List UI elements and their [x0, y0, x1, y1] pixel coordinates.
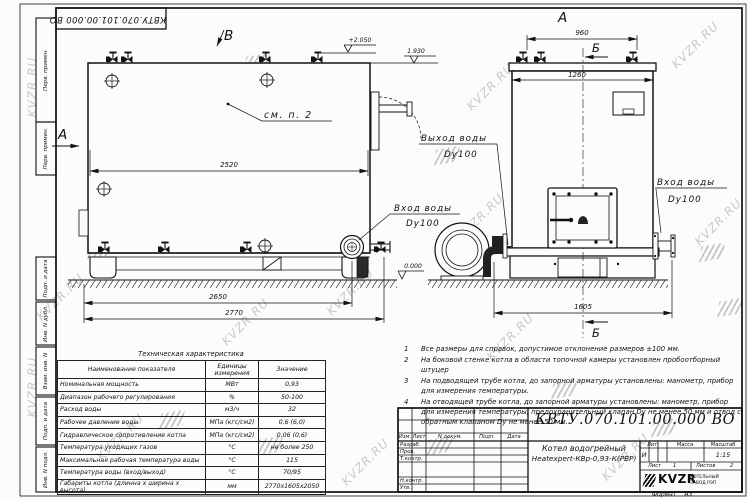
- reversed-designation: КВТУ.070.101.00.000 ВО: [56, 8, 166, 29]
- table-cell: Номинальная мощность: [58, 379, 206, 392]
- inlet-left-callout-line1: Вход воды: [394, 204, 452, 214]
- outlet-callout-line1: Выход воды: [421, 134, 487, 144]
- table-cell: МПа (кгс/см2): [206, 429, 259, 442]
- format-note: ФорматА3: [652, 491, 700, 498]
- table-row: Диапазон рабочего регулирования%50-100: [58, 391, 326, 404]
- elevation-mid-label: 1.930: [407, 48, 425, 55]
- table-row: Температура уходящих газов°Сне более 250: [58, 441, 326, 454]
- margin-box-podp-data-2: Подп. и дата: [36, 397, 56, 445]
- dim-2520-label: 2520: [220, 161, 238, 169]
- margin-box-perv-primen-1: Перв. примен.: [36, 18, 56, 122]
- format-label: Формат: [652, 491, 676, 498]
- dim-2650-label: 2650: [209, 293, 227, 301]
- inlet-flange-front: [653, 233, 675, 259]
- note-number: 1: [399, 344, 421, 354]
- blower-fan: [435, 223, 511, 280]
- table-cell: °С: [206, 467, 259, 480]
- table-cell: мм: [206, 479, 259, 494]
- title-block-designation: КВТУ.070.101.00.000 ВО: [528, 412, 742, 428]
- row-utv-label: Утв.: [400, 485, 411, 491]
- col-ndoc-label: N докум.: [438, 434, 462, 440]
- note-text: Все размеры для справок, допустимое откл…: [421, 344, 743, 354]
- table-cell: м3/ч: [206, 404, 259, 417]
- note-text: На боковой стенке котла в области топочн…: [421, 355, 743, 375]
- sheet-label: Лист: [648, 463, 661, 469]
- col-izm-label: Изм.: [399, 434, 411, 440]
- note-number: 4: [399, 397, 421, 427]
- dim-1605-label: 1605: [574, 303, 592, 311]
- margin-box-inv-dubl: Инв. N дубл.: [36, 302, 56, 345]
- note-item: 2 На боковой стенке котла в области топо…: [399, 355, 743, 375]
- table-cell: 70/95: [259, 467, 326, 480]
- view-b-label: В: [224, 28, 233, 44]
- margin-box-inv-podl: Инв. N подл.: [36, 447, 56, 492]
- table-row: Максимальная рабочая температура воды°С1…: [58, 454, 326, 467]
- format-value: А3: [684, 491, 692, 498]
- table-cell: МПа (кгс/см2): [206, 416, 259, 429]
- table-row: Габариты котла (длинна х ширина х высота…: [58, 479, 326, 494]
- table-row: Расход водым3/ч32: [58, 404, 326, 417]
- table-cell: 50-100: [259, 391, 326, 404]
- lit-label: Лит.: [647, 442, 659, 448]
- tech-table-title: Техническая характеристика: [57, 350, 325, 358]
- col-list-label: Лист: [412, 434, 425, 440]
- table-cell: МВт: [206, 379, 259, 392]
- sheets-label: Листов: [696, 463, 715, 469]
- table-cell: Расход воды: [58, 404, 206, 417]
- dim-2770-label: 2770: [225, 309, 243, 317]
- table-cell: 115: [259, 454, 326, 467]
- mass-label: Масса: [677, 442, 694, 448]
- table-cell: Температура воды (вход/выход): [58, 467, 206, 480]
- table-cell: Максимальная рабочая температура воды: [58, 454, 206, 467]
- table-cell: °С: [206, 441, 259, 454]
- sheet-value: 1: [673, 463, 676, 469]
- section-a-side-label: А: [57, 127, 67, 143]
- margin-box-perv-primen-2: Перв. примен.: [36, 122, 56, 175]
- inlet-right-callout-line2: Dy100: [668, 195, 702, 205]
- note-item: 1 Все размеры для справок, допустимое от…: [399, 344, 743, 354]
- doc-name-line1: Котел водогрейный: [528, 444, 640, 453]
- scale-value: 1:15: [716, 451, 731, 459]
- view-a-top-label: А: [557, 10, 567, 26]
- inlet-left-callout-line2: Dy100: [406, 219, 440, 229]
- table-cell: Рабочее давление воды: [58, 416, 206, 429]
- margin-box-vzam-inv: Взам. инв. N: [36, 347, 56, 395]
- table-cell: Диапазон рабочего регулирования: [58, 391, 206, 404]
- table-cell: Температура уходящих газов: [58, 441, 206, 454]
- table-cell: %: [206, 391, 259, 404]
- row-nkontr-label: Н.контр.: [400, 478, 423, 484]
- scale-label: Масштаб: [711, 442, 736, 448]
- furnace-door: [548, 188, 617, 248]
- kvzr-logo-subtext: КОТЕЛЬНЫЙЗАВОД РЭП: [690, 475, 719, 486]
- row-tkontr-label: Т.контр.: [400, 456, 422, 462]
- col-podp-label: Подп.: [479, 434, 495, 440]
- lit-value: И: [642, 451, 647, 459]
- table-row: Гидравлическое сопротивление котлаМПа (к…: [58, 429, 326, 442]
- row-prov-label: Пров.: [400, 449, 415, 455]
- table-row: Рабочее давление водыМПа (кгс/см2)0,6 (6…: [58, 416, 326, 429]
- table-cell: не более 250: [259, 441, 326, 454]
- table-header-name: Наименование показателя: [58, 361, 206, 379]
- tech-characteristics-table: Техническая характеристика Наименование …: [57, 350, 325, 495]
- col-data-label: Дата: [507, 434, 520, 440]
- doc-name-line2: Heatexpert-КВр-0,93-К(РВР): [527, 454, 641, 463]
- see-note-callout: см. п. 2: [264, 110, 313, 121]
- margin-box-podp-data-1: Подп. и дата: [36, 257, 56, 300]
- table-header-value: Значение: [259, 361, 326, 379]
- table-row: Температура воды (вход/выход)°С70/95: [58, 467, 326, 480]
- boiler-front-view: [428, 48, 675, 338]
- outlet-callout-line2: Dy100: [444, 150, 478, 160]
- kvzr-sub-line2: ЗАВОД РЭП: [690, 481, 716, 486]
- drawing-sheet: KVZR.RU KVZR.RU KVZR.RU KVZR.RU KVZR.RU …: [0, 0, 750, 500]
- section-b-bottom-label: Б: [592, 326, 600, 340]
- note-item: 3 На подводящей трубе котла, до запорной…: [399, 376, 743, 396]
- table-cell: 2770х1605х2050: [259, 479, 326, 494]
- section-b-top-label: Б: [592, 41, 600, 55]
- note-number: 2: [399, 355, 421, 375]
- table-cell: 0,06 (0,6): [259, 429, 326, 442]
- elevation-top-label: +2.050: [349, 37, 372, 44]
- table-cell: 32: [259, 404, 326, 417]
- row-razrab-label: Разраб.: [400, 442, 420, 448]
- note-text: На подводящей трубе котла, до запорной а…: [421, 376, 743, 396]
- sheets-value: 2: [730, 463, 733, 469]
- table-cell: Гидравлическое сопротивление котла: [58, 429, 206, 442]
- table-cell: °С: [206, 454, 259, 467]
- kvzr-sub-line1: КОТЕЛЬНЫЙ: [690, 475, 719, 480]
- table-cell: 0,6 (6,0): [259, 416, 326, 429]
- table-row: Номинальная мощностьМВт0,93: [58, 379, 326, 392]
- table-cell: Габариты котла (длинна х ширина х высота…: [58, 479, 206, 494]
- dim-1260-label: 1260: [568, 71, 586, 79]
- table-header-units: Единицы измерения: [206, 361, 259, 379]
- dim-960-label: 960: [575, 29, 589, 37]
- inlet-right-callout-line1: Вход воды: [657, 178, 715, 188]
- note-number: 3: [399, 376, 421, 396]
- table-cell: 0,93: [259, 379, 326, 392]
- elevation-zero-label: 0.000: [404, 263, 422, 270]
